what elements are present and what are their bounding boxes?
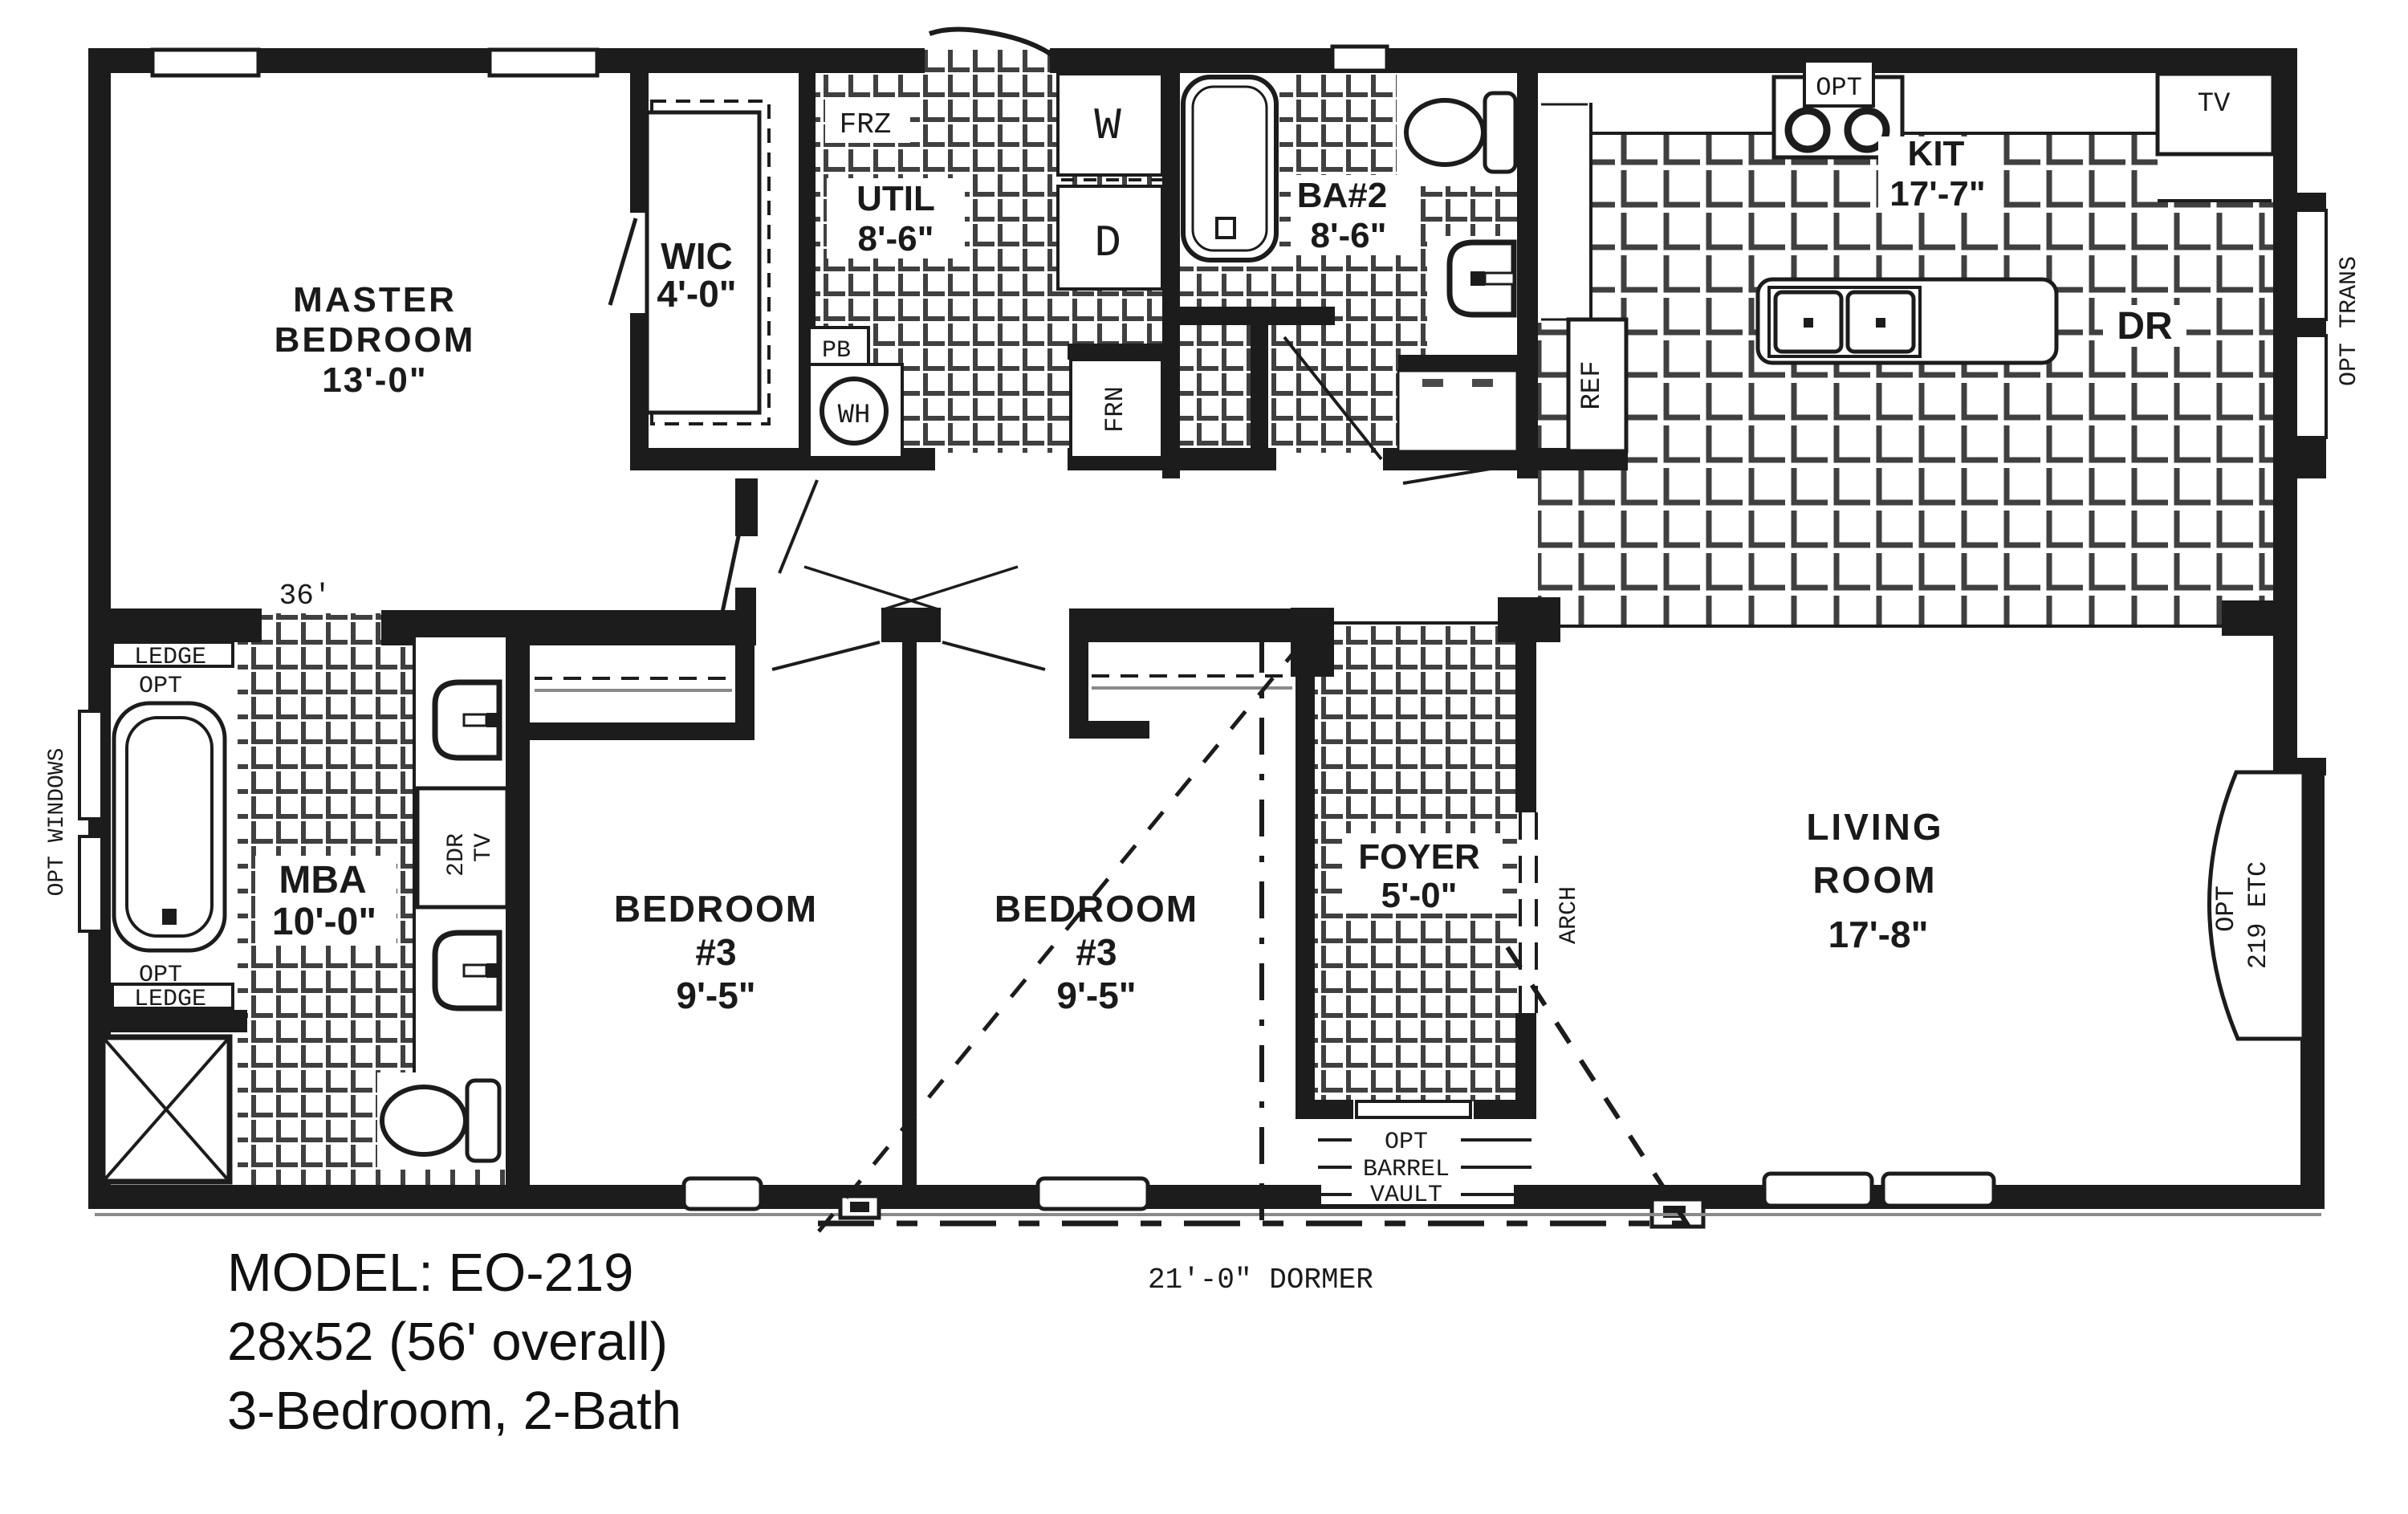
svg-text:17'-8": 17'-8": [1828, 914, 1929, 955]
svg-text:UTIL: UTIL: [856, 179, 935, 218]
svg-text:OPT TRANS: OPT TRANS: [2336, 256, 2363, 386]
svg-text:LIVING: LIVING: [1806, 806, 1943, 848]
svg-text:FRN: FRN: [1100, 386, 1130, 433]
svg-text:BEDROOM: BEDROOM: [275, 320, 476, 360]
svg-text:3-Bedroom, 2-Bath: 3-Bedroom, 2-Bath: [227, 1381, 681, 1441]
svg-text:MBA: MBA: [279, 859, 366, 901]
svg-text:219 ETC: 219 ETC: [2243, 861, 2273, 969]
svg-text:9'-5": 9'-5": [1056, 975, 1136, 1016]
svg-text:17'-7": 17'-7": [1889, 174, 1985, 214]
svg-text:OPT: OPT: [139, 673, 182, 700]
svg-text:FOYER: FOYER: [1358, 837, 1480, 877]
svg-text:36': 36': [279, 580, 332, 613]
svg-text:BARREL: BARREL: [1363, 1156, 1450, 1183]
svg-text:MODEL: EO-219: MODEL: EO-219: [227, 1243, 633, 1303]
svg-text:8'-6": 8'-6": [1311, 216, 1387, 255]
svg-text:KIT: KIT: [1908, 134, 1965, 173]
svg-text:WH: WH: [838, 401, 871, 431]
svg-text:VAULT: VAULT: [1370, 1182, 1442, 1209]
svg-text:4'-0": 4'-0": [657, 273, 736, 315]
svg-text:9'-5": 9'-5": [676, 975, 755, 1016]
svg-text:LEDGE: LEDGE: [134, 986, 206, 1013]
svg-text:28x52 (56' overall): 28x52 (56' overall): [227, 1312, 668, 1372]
svg-text:REF: REF: [1577, 360, 1608, 409]
svg-text:BEDROOM: BEDROOM: [995, 888, 1198, 930]
svg-text:WIC: WIC: [661, 235, 732, 277]
svg-text:OPT: OPT: [139, 962, 182, 989]
svg-text:DR: DR: [2117, 305, 2172, 348]
svg-text:13'-0": 13'-0": [322, 360, 427, 400]
svg-text:10'-0": 10'-0": [272, 901, 376, 943]
svg-text:#3: #3: [695, 931, 736, 973]
svg-text:8'-6": 8'-6": [858, 219, 934, 258]
svg-text:ARCH: ARCH: [1556, 886, 1583, 944]
svg-text:OPT: OPT: [2211, 885, 2241, 932]
svg-text:#3: #3: [1076, 931, 1117, 973]
svg-text:BA#2: BA#2: [1297, 176, 1388, 215]
svg-text:OPT WINDOWS: OPT WINDOWS: [45, 748, 70, 897]
svg-text:PB: PB: [822, 337, 851, 364]
svg-text:ROOM: ROOM: [1812, 859, 1937, 901]
svg-text:BEDROOM: BEDROOM: [614, 888, 818, 930]
svg-text:TV: TV: [2198, 89, 2231, 120]
svg-text:OPT: OPT: [1385, 1129, 1428, 1156]
svg-text:W: W: [1094, 100, 1121, 152]
svg-text:FRZ: FRZ: [840, 108, 892, 141]
svg-text:LEDGE: LEDGE: [134, 644, 206, 671]
svg-text:21'-0" DORMER: 21'-0" DORMER: [1148, 1264, 1373, 1296]
svg-text:OPT: OPT: [1816, 73, 1862, 103]
svg-text:5'-0": 5'-0": [1381, 876, 1458, 915]
svg-text:MASTER: MASTER: [293, 280, 457, 319]
svg-text:D: D: [1094, 218, 1121, 269]
